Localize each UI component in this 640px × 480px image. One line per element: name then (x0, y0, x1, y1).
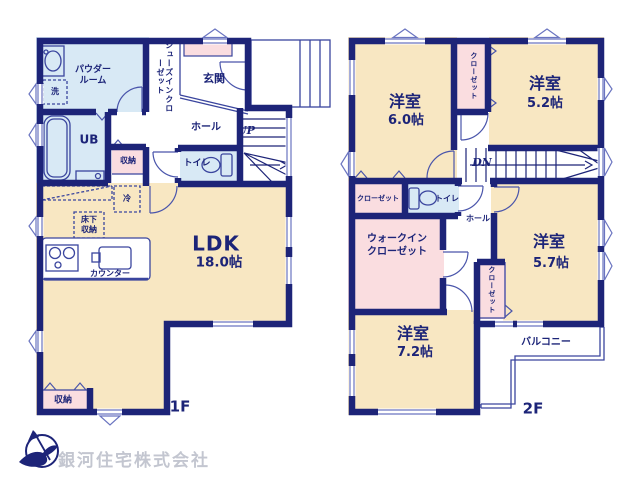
label-entrance: 玄関 (203, 72, 225, 86)
label-storage-bottom: 収納 (54, 395, 72, 406)
label-powder-room: パウダールーム (75, 65, 111, 88)
label-room-d: 洋室 (397, 324, 429, 344)
label-washer: 洗 (51, 87, 59, 97)
label-room-a: 洋室 (389, 92, 421, 112)
label-underfloor-storage: 床下収納 (81, 215, 97, 235)
label-room-c: 洋室 (533, 232, 565, 252)
label-closet-top: クローゼット (469, 44, 477, 108)
label-room-a-size: 6.0帖 (388, 113, 424, 129)
label-ldk: LDK (192, 232, 240, 257)
label-counter: カウンター (90, 269, 130, 279)
label-floor1: 1F (170, 398, 191, 417)
label-hall-1f: ホール (191, 122, 221, 135)
label-shoes-closet: シューズインクローゼット (155, 41, 173, 113)
compass-logo (19, 430, 58, 467)
porch-steps (251, 40, 330, 107)
label-dn: DN (472, 156, 492, 170)
label-walk-in-closet: ウォークインクローゼット (367, 234, 427, 259)
label-room-d-size: 7.2帖 (397, 345, 433, 361)
label-closet-left: クローゼット (357, 195, 399, 204)
label-room-b-size: 5.2帖 (527, 96, 563, 112)
label-room-c-size: 5.7帖 (533, 256, 569, 272)
label-storage-hall: 収納 (120, 156, 136, 166)
label-toilet-1f: トイレ (183, 158, 210, 169)
company-watermark: 銀河住宅株式会社 (58, 446, 210, 471)
label-up: UP (237, 124, 255, 138)
label-hall-2f: ホール (466, 214, 490, 224)
label-balcony: バルコニー (521, 337, 571, 350)
floorplan-page: パウダールーム 洗 シューズインクローゼット 玄関 ホール UP UB 収納 ト… (0, 0, 640, 480)
label-ldk-size: 18.0帖 (196, 255, 243, 272)
label-unit-bath: UB (80, 133, 99, 148)
label-fridge: 冷 (123, 194, 131, 204)
label-toilet-2f: トイレ (435, 194, 459, 204)
label-closet-mid: クローゼット (487, 263, 495, 317)
label-room-b: 洋室 (529, 74, 561, 94)
label-floor2: 2F (523, 400, 544, 419)
